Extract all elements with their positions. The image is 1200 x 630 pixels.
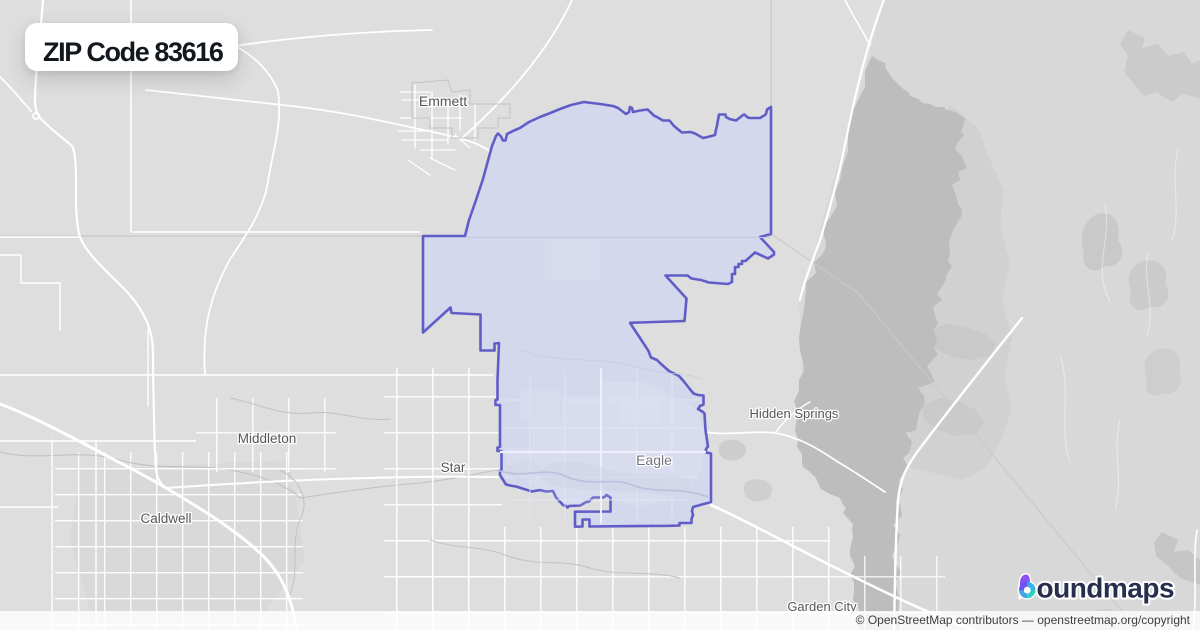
- svg-text:Eagle: Eagle: [636, 452, 672, 468]
- svg-text:Star: Star: [441, 460, 466, 475]
- svg-text:Middleton: Middleton: [238, 431, 297, 446]
- svg-text:oundmaps: oundmaps: [1037, 572, 1175, 603]
- svg-text:Caldwell: Caldwell: [140, 511, 191, 526]
- svg-text:Hidden Springs: Hidden Springs: [750, 406, 839, 421]
- svg-text:Emmett: Emmett: [419, 93, 467, 109]
